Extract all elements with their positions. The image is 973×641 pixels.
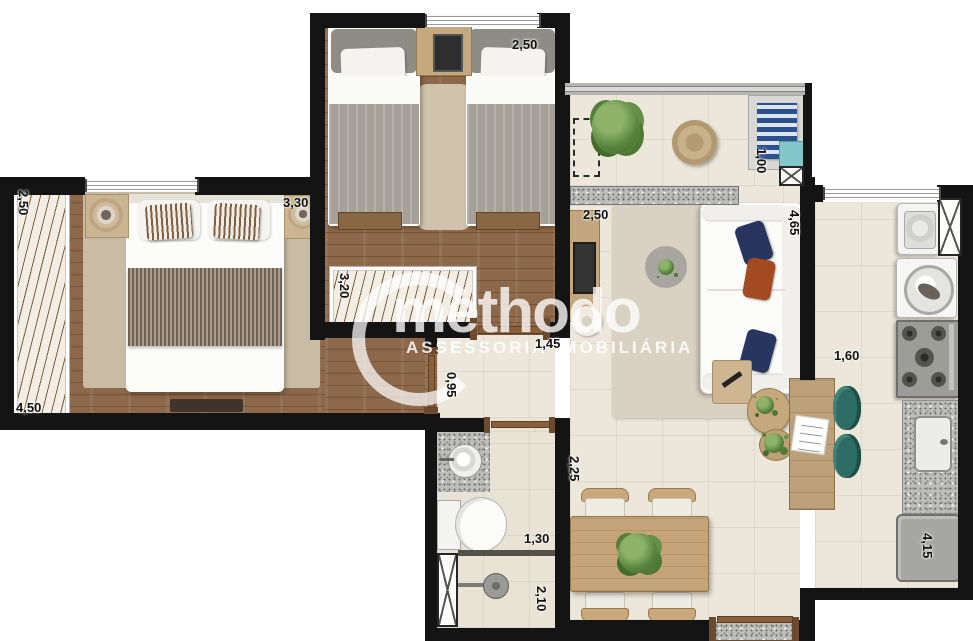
floor-plan: methodo ASSESSORIA IMOBILIÁRIA 2,50 3,30… [0,0,973,641]
dim-balcony-side: 1,00 [754,148,769,173]
dim-living-side: 4,65 [787,210,802,235]
door-jamb [792,617,799,641]
dim-bathroom-width: 1,30 [524,531,549,546]
washing-machine [896,258,957,318]
bathroom-door [491,421,550,428]
shaft-x-symbol-bathroom [437,553,458,627]
wall [310,322,475,338]
wall [800,177,815,380]
bed-bench-right [476,212,540,230]
shower-glass-divider [458,550,555,556]
dresser [170,399,243,412]
dim-bedroom1-top: 3,30 [283,195,308,210]
bar-stool-2 [833,434,861,478]
remote-control [722,371,743,388]
wall [555,418,570,641]
side-table [712,360,752,404]
bed-blanket [128,268,282,346]
gray-blanket [467,104,557,224]
dim-bedroom1-side: 2,50 [16,190,31,215]
shower-head [483,573,509,599]
faucet [940,439,948,445]
gray-blanket [329,104,419,224]
entry-door [717,616,793,623]
dining-chair-top-2 [648,488,694,518]
sofa-armrest-top [703,205,787,220]
shaft-x-symbol-kitchen [938,198,962,256]
bedroom2-door [478,326,544,334]
dim-living-top: 2,50 [583,207,608,222]
dim-bathroom-side: 2,10 [534,586,549,611]
dining-centerpiece-plant [618,533,658,573]
small-table-plant [764,433,784,453]
coffee-plant [658,259,674,275]
sheet-fold [329,76,419,106]
balcony-pouf [672,120,717,165]
dining-chair-top-1 [581,488,627,518]
window-kitchen [823,187,941,200]
kitchen-sink [914,416,952,472]
wall [310,13,425,28]
wall [195,177,323,195]
wall [555,13,570,337]
door-jamb [470,318,477,340]
wall [555,620,713,641]
wall [425,628,570,641]
wall [425,430,437,641]
dining-chair-bottom-2 [648,590,694,620]
wall [803,83,812,183]
dim-bedroom2-top: 2,50 [512,37,537,52]
bar-stool-1 [833,386,861,430]
door-jamb [424,407,438,414]
wall [815,185,823,202]
dim-hall-width: 1,45 [535,336,560,351]
balcony-low-wall [570,186,739,205]
lamp-left [89,198,123,232]
round-table-plant [756,396,774,414]
radio-on-nightstand [433,34,463,72]
wall [437,418,488,432]
wardrobe-bedroom1 [14,190,69,419]
twin-bed-right [466,26,558,226]
shaft-x-symbol-balcony [779,166,804,186]
window-bedroom2 [425,14,541,27]
bedroom2-rug [417,84,471,230]
bathroom-faucet [440,458,454,461]
dining-chair-bottom-1 [581,590,627,620]
window-bedroom1 [85,179,199,192]
door-jamb [424,347,438,354]
living-pouf [572,306,602,336]
bedroom1-door [428,355,435,408]
wall [0,177,14,430]
floor-balcony-passage [737,186,800,203]
bed-bench-left [338,212,402,230]
striped-pillow-left [145,202,193,240]
dim-kitchen-width: 1,60 [834,348,859,363]
bathroom-sink [448,444,482,478]
terracotta-pillow [742,257,777,301]
tv [573,242,596,294]
dim-kitchen-side: 4,15 [920,533,935,558]
dim-bedroom2-side: 3,20 [337,273,352,298]
striped-pillow-right [213,203,261,240]
dim-bedroom1-bottom: 4,50 [16,400,41,415]
floor-bedroom1-extension [325,337,425,413]
door-jamb [484,417,490,433]
bar-paper [791,415,830,455]
wall [310,13,325,340]
door-jamb [709,617,716,641]
balcony-railing [565,83,805,95]
wall [800,588,973,600]
sheet-fold [467,76,557,106]
toilet-bowl [455,497,507,552]
dim-dining-side: 2,25 [567,456,582,481]
dim-hall-side: 0,95 [444,372,459,397]
cooktop-stove [896,320,960,398]
balcony-plant [592,100,640,154]
stove-control-strip [949,324,954,390]
double-bed [126,194,284,392]
entry-threshold [713,622,797,641]
twin-bed-left [328,26,420,226]
wall [0,413,440,430]
laundry-tank [897,203,941,255]
